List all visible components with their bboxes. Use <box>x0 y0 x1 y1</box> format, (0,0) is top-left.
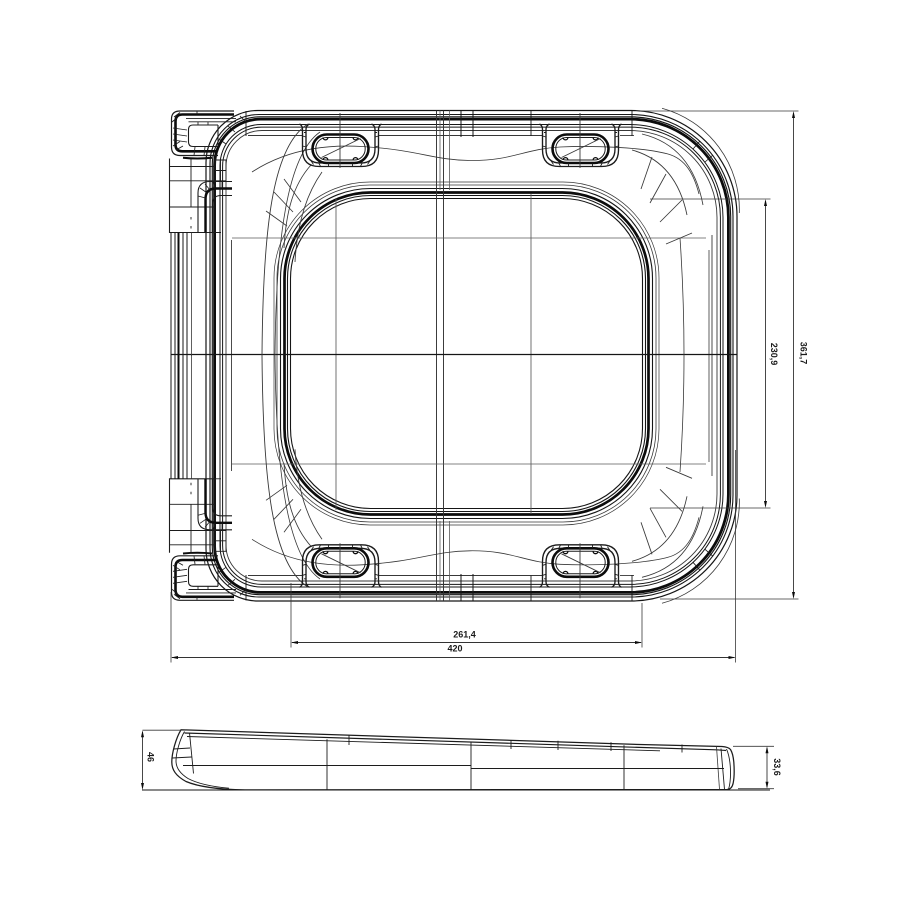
svg-text:33,6: 33,6 <box>772 758 782 776</box>
svg-text:420: 420 <box>447 644 462 654</box>
svg-text:230,9: 230,9 <box>769 343 779 366</box>
svg-text:46: 46 <box>146 752 156 762</box>
svg-text:361,7: 361,7 <box>799 342 809 365</box>
svg-text:261,4: 261,4 <box>453 630 476 640</box>
